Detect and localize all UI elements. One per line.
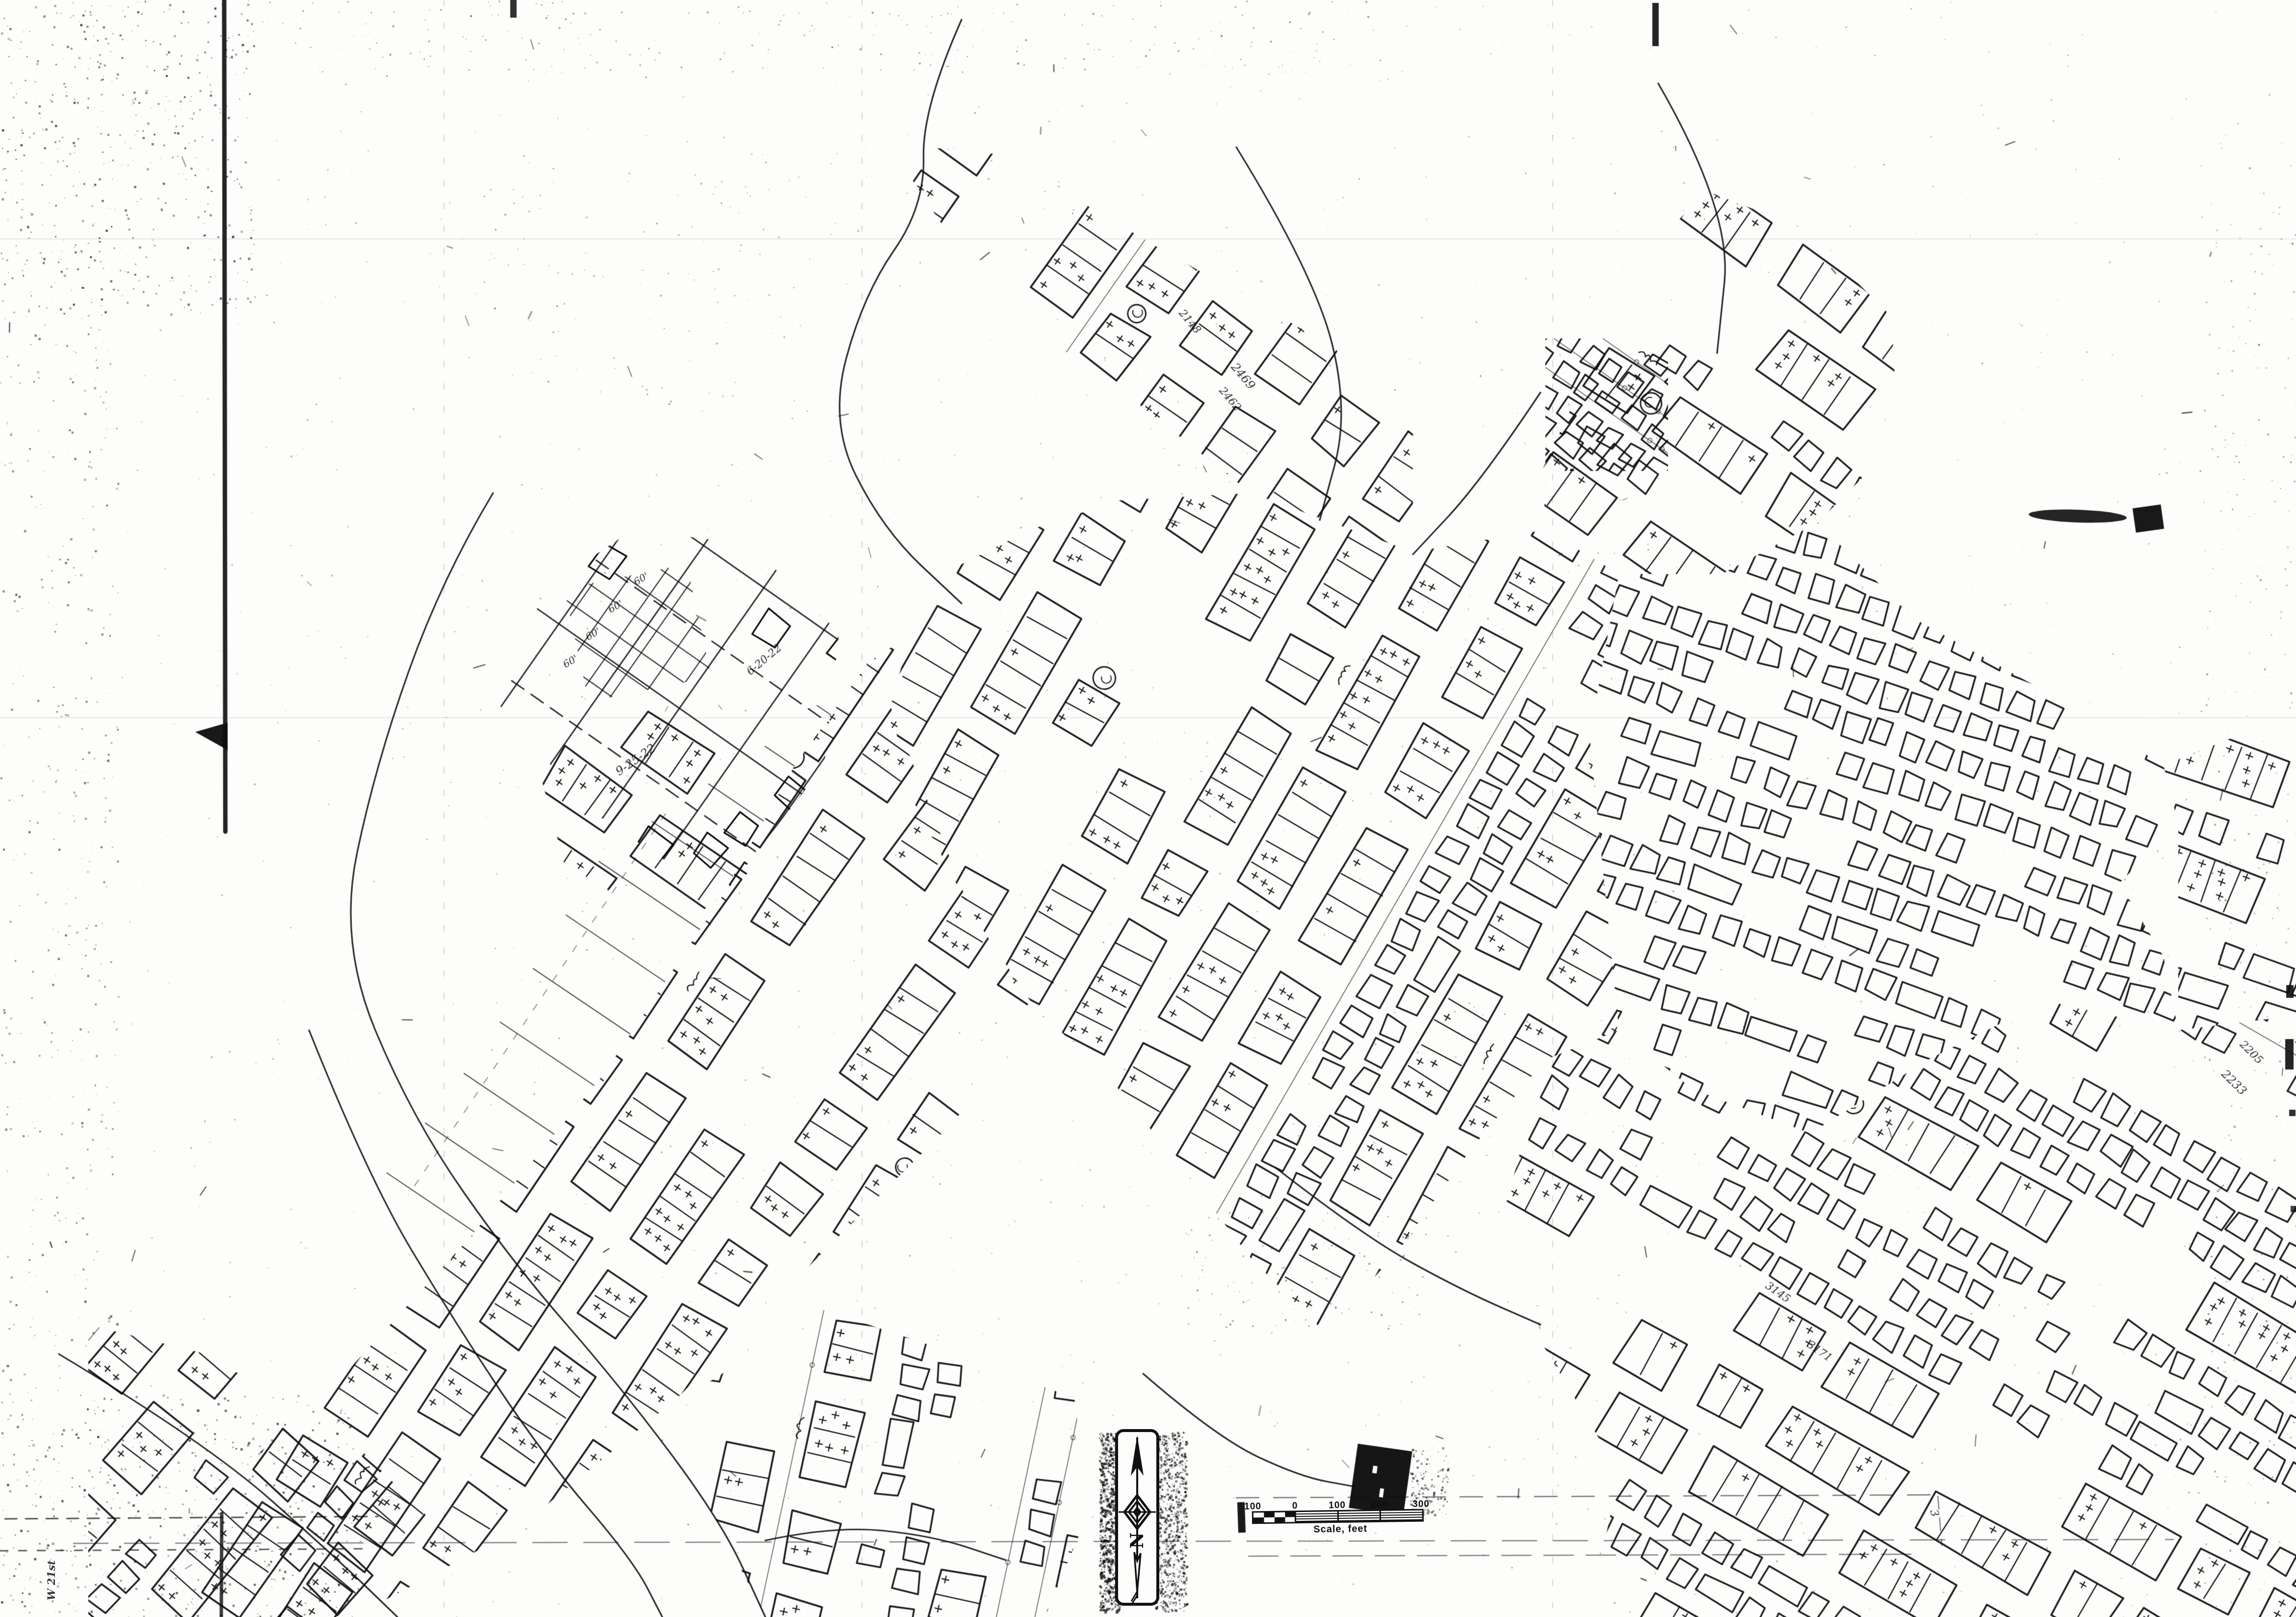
scale-segment — [1295, 1512, 1337, 1522]
scale-segment-checker — [1253, 1512, 1295, 1522]
scale-tick-label: 300 — [1412, 1499, 1430, 1510]
scale-bar: 100 0 100 200 300 Scale, feet — [1244, 1497, 1431, 1541]
north-label: N — [1127, 1533, 1148, 1549]
scale-segment — [1337, 1511, 1380, 1521]
scale-segment — [1380, 1511, 1422, 1521]
scale-caption: Scale, feet — [1313, 1523, 1367, 1536]
scanned-plat-map-page: N 100 0 100 200 300 Scale, feet W 21st — [0, 0, 2296, 1617]
north-arrow: N — [1115, 1429, 1160, 1606]
map-canvas — [0, 0, 2296, 1617]
north-arrow-graphic — [1115, 1429, 1160, 1606]
margin-note: W 21st — [45, 1560, 57, 1600]
scale-bar-rule — [1252, 1509, 1424, 1524]
scale-tick-label: 0 — [1292, 1501, 1298, 1512]
